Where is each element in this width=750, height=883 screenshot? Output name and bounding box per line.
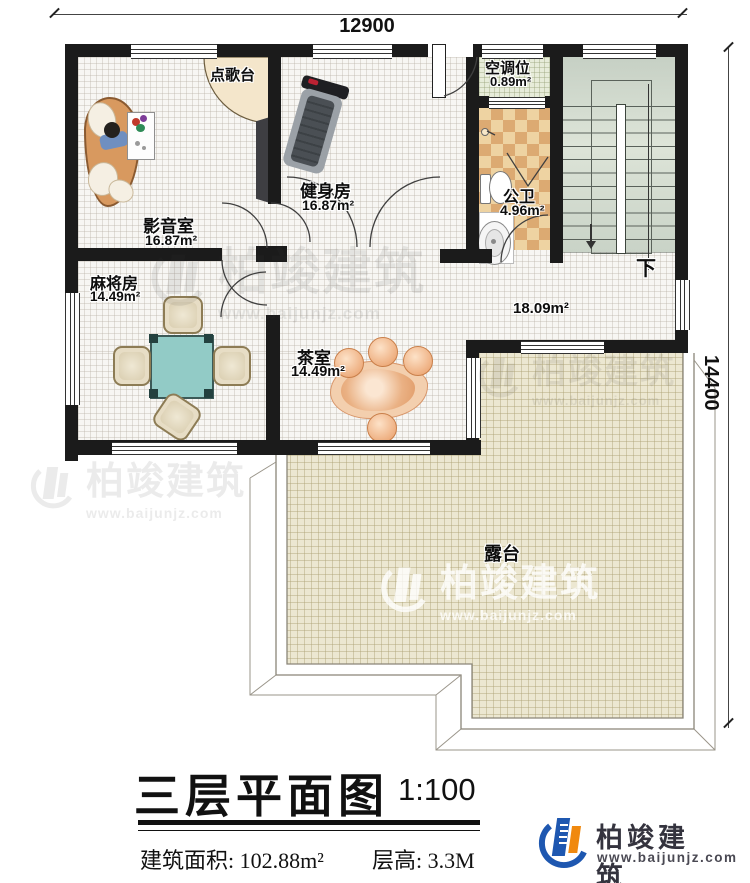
- chair: [213, 346, 251, 386]
- label-terrace: 露台: [484, 540, 520, 566]
- watermark-logo-icon: [30, 461, 76, 511]
- flower-decoration: [136, 124, 145, 132]
- table-knob: [142, 146, 146, 150]
- wall-bathroom-left: [466, 44, 479, 263]
- tea-stool: [368, 337, 398, 367]
- wall-stairs-left: [550, 44, 563, 263]
- label-tea-room-area: 14.49m²: [291, 364, 345, 380]
- window: [675, 280, 690, 330]
- brand-logo: 柏竣建筑 www.baijunjz.com: [538, 810, 718, 874]
- label-gym-area: 16.87m²: [302, 197, 354, 213]
- title-rule-thin: [138, 830, 480, 831]
- mahjong-table-corner: [149, 334, 158, 343]
- watermark-url: www.baijunjz.com: [86, 505, 246, 521]
- label-media-room-area: 16.87m²: [145, 232, 197, 248]
- top-dimension-label: 12900: [307, 15, 427, 38]
- floorplan-page: 12900 14400: [0, 0, 750, 883]
- flower-decoration: [140, 115, 147, 122]
- stair-center-rail: [616, 104, 626, 254]
- wall-media-gym-divider: [268, 44, 281, 204]
- watermark: 柏竣建筑 www.baijunjz.com: [30, 450, 246, 521]
- floor-height-label: 层高:: [372, 848, 422, 873]
- mahjong-table-corner: [204, 334, 213, 343]
- wall-mahjong-right: [266, 315, 280, 442]
- tea-stool: [367, 413, 397, 443]
- floor-height-value: 3.3M: [428, 848, 475, 873]
- floor-drain: [481, 128, 489, 136]
- building-area-stat: 建筑面积: 102.88m²: [140, 843, 324, 875]
- brand-website: www.baijunjz.com: [597, 850, 738, 865]
- label-mahjong-room-area: 14.49m²: [90, 289, 140, 304]
- scale-label: 1:100: [398, 772, 476, 808]
- right-dimension-label: 14400: [699, 355, 722, 411]
- wall-ac-bath-divider: [466, 96, 489, 108]
- label-ac-unit-area: 0.89m²: [490, 74, 531, 89]
- mahjong-table-corner: [204, 389, 213, 398]
- building-area-label: 建筑面积:: [140, 848, 234, 873]
- table-knob: [135, 141, 140, 146]
- label-karaoke-station: 点歌台: [210, 64, 255, 85]
- chair: [163, 296, 203, 334]
- window: [466, 358, 481, 438]
- window: [112, 442, 237, 455]
- window: [489, 97, 545, 109]
- mahjong-table-corner: [149, 389, 158, 398]
- title-rule-thick: [138, 820, 480, 825]
- person-head: [104, 122, 120, 138]
- chair: [113, 346, 151, 386]
- stair-down-arrowhead: [586, 241, 596, 249]
- label-bathroom-area: 4.96m²: [500, 202, 544, 218]
- building-area-value: 102.88m²: [240, 848, 324, 873]
- tea-stool: [403, 346, 433, 376]
- window: [131, 44, 217, 59]
- floor-height-stat: 层高: 3.3M: [372, 843, 475, 875]
- brand-logo-icon: [538, 812, 590, 870]
- sink-drain: [491, 239, 496, 244]
- door-leaf: [432, 44, 446, 98]
- label-hall-area: 18.09m²: [513, 300, 569, 317]
- right-dimension-line: [728, 48, 729, 728]
- dimension-tick: [677, 8, 688, 19]
- dimension-tick: [49, 8, 60, 19]
- window: [583, 44, 656, 59]
- stair-down-arrow: [590, 224, 592, 242]
- label-stairs-down: 下: [636, 252, 656, 281]
- wall-door-jamb: [256, 246, 287, 262]
- wall-bathroom-bottom: [455, 250, 492, 263]
- stair-direction-line: [648, 84, 649, 270]
- sliding-door: [521, 341, 604, 354]
- wall-media-bottom: [65, 248, 222, 261]
- page-title: 三层平面图: [134, 760, 389, 826]
- window: [313, 44, 392, 59]
- watermark-name: 柏竣建筑: [86, 450, 246, 505]
- window: [318, 442, 430, 455]
- window: [65, 293, 80, 405]
